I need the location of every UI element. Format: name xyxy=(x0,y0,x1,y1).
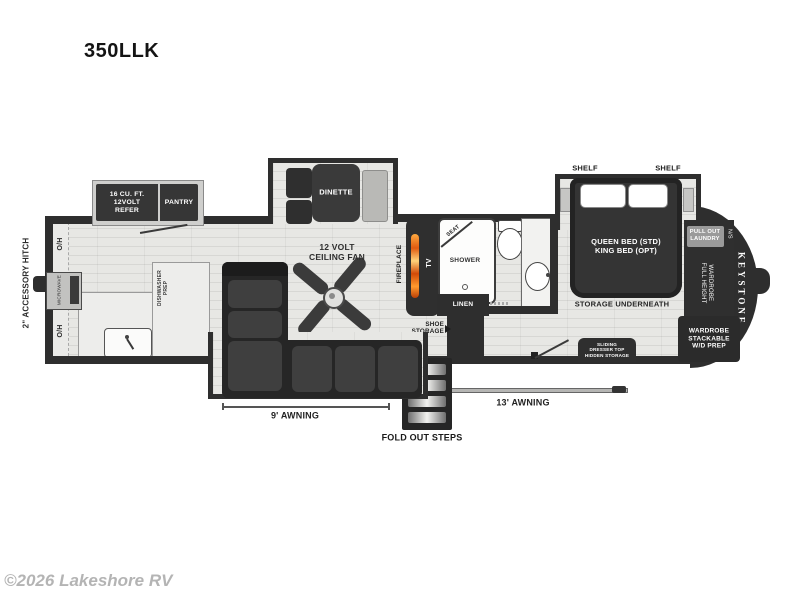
fireplace-label: FIREPLACE xyxy=(396,245,404,284)
ceiling-fan-label: 12 VOLT CEILING FAN xyxy=(309,242,365,262)
dishwasher-prep-label: DISHWASHER PREP xyxy=(158,270,170,306)
awning-9-label: 9' AWNING xyxy=(271,411,319,422)
floorplan-canvas: 350LLK 2" ACCESSORY HITCH DISHWASHER PRE… xyxy=(0,0,800,600)
refer-pantry-divider xyxy=(158,184,160,221)
toilet-bowl xyxy=(497,228,523,260)
sofa-cushion xyxy=(292,346,332,392)
overhead-top-label: O/H xyxy=(57,237,65,250)
wardrobe-stackable-label: WARDROBE STACKABLE W/D PREP xyxy=(688,328,729,351)
awning-9-bar xyxy=(222,406,390,408)
shelf-right-label: SHELF xyxy=(655,165,681,174)
page-title: 350LLK xyxy=(84,40,159,63)
dinette-label: DINETTE xyxy=(319,189,352,198)
storage-column xyxy=(447,316,484,364)
linen-label: LINEN xyxy=(453,301,474,309)
keystone-brand: KEYSTONE xyxy=(736,252,747,326)
bed-label: QUEEN BED (STD) KING BED (OPT) xyxy=(591,238,661,256)
bath-bedroom-wall xyxy=(550,216,558,314)
fan-hub-dot xyxy=(329,293,335,299)
fold-out-steps-label: FOLD OUT STEPS xyxy=(382,433,463,444)
accessory-hitch-label: 2" ACCESSORY HITCH xyxy=(21,238,30,329)
awning-9-tick-right xyxy=(388,403,390,410)
step-tread xyxy=(408,412,446,423)
overhead-bottom-label: O/H xyxy=(57,324,65,337)
dinette-chair-1 xyxy=(286,168,312,198)
microwave-door xyxy=(70,276,79,304)
sofa-cushion xyxy=(228,311,282,338)
threshold-marks xyxy=(490,302,508,305)
shower-drain xyxy=(462,284,468,290)
awning-13-label: 13' AWNING xyxy=(496,398,549,409)
sofa-armrest xyxy=(222,262,288,276)
pull-out-laundry-label: PULL OUT LAUNDRY xyxy=(690,229,720,243)
microwave-label: MICROWAVE xyxy=(56,275,61,305)
top-wall-2 xyxy=(196,216,274,224)
sliding-dresser-label: SLIDING DRESSER TOP HIDDEN STORAGE xyxy=(585,342,629,358)
sofa-cushion xyxy=(378,346,418,392)
full-height-wardrobe-label: FULL HEIGHT WARDROBE xyxy=(699,263,713,304)
kingpin xyxy=(752,268,770,294)
sofa-cushion xyxy=(228,280,282,308)
pillow-left xyxy=(580,184,626,208)
dinette-bench xyxy=(362,170,388,222)
nightstand-right xyxy=(683,188,694,212)
sofa-cushion xyxy=(228,341,282,391)
bottom-wall-1 xyxy=(45,356,215,364)
bath-bottom-wall xyxy=(487,306,557,314)
storage-underneath-label: STORAGE UNDERNEATH xyxy=(575,301,670,310)
refer-label: 16 CU. FT. 12VOLT REFER xyxy=(110,191,144,215)
shower-label: SHOWER xyxy=(450,257,480,265)
copyright-watermark: ©2026 Lakeshore RV xyxy=(4,571,172,591)
awning-9-tick-left xyxy=(222,403,224,410)
nightstand-label: N/S xyxy=(726,229,732,239)
pillow-right xyxy=(628,184,668,208)
dinette-chair-2 xyxy=(286,200,312,224)
pantry-label: PANTRY xyxy=(165,199,193,207)
fireplace-flames xyxy=(411,234,419,298)
sofa-cushion xyxy=(335,346,375,392)
awning-13-cap-right xyxy=(612,386,626,393)
tv-label: TV xyxy=(426,258,434,267)
shoe-storage-arrow xyxy=(445,325,451,333)
shelf-left-label: SHELF xyxy=(572,165,598,174)
